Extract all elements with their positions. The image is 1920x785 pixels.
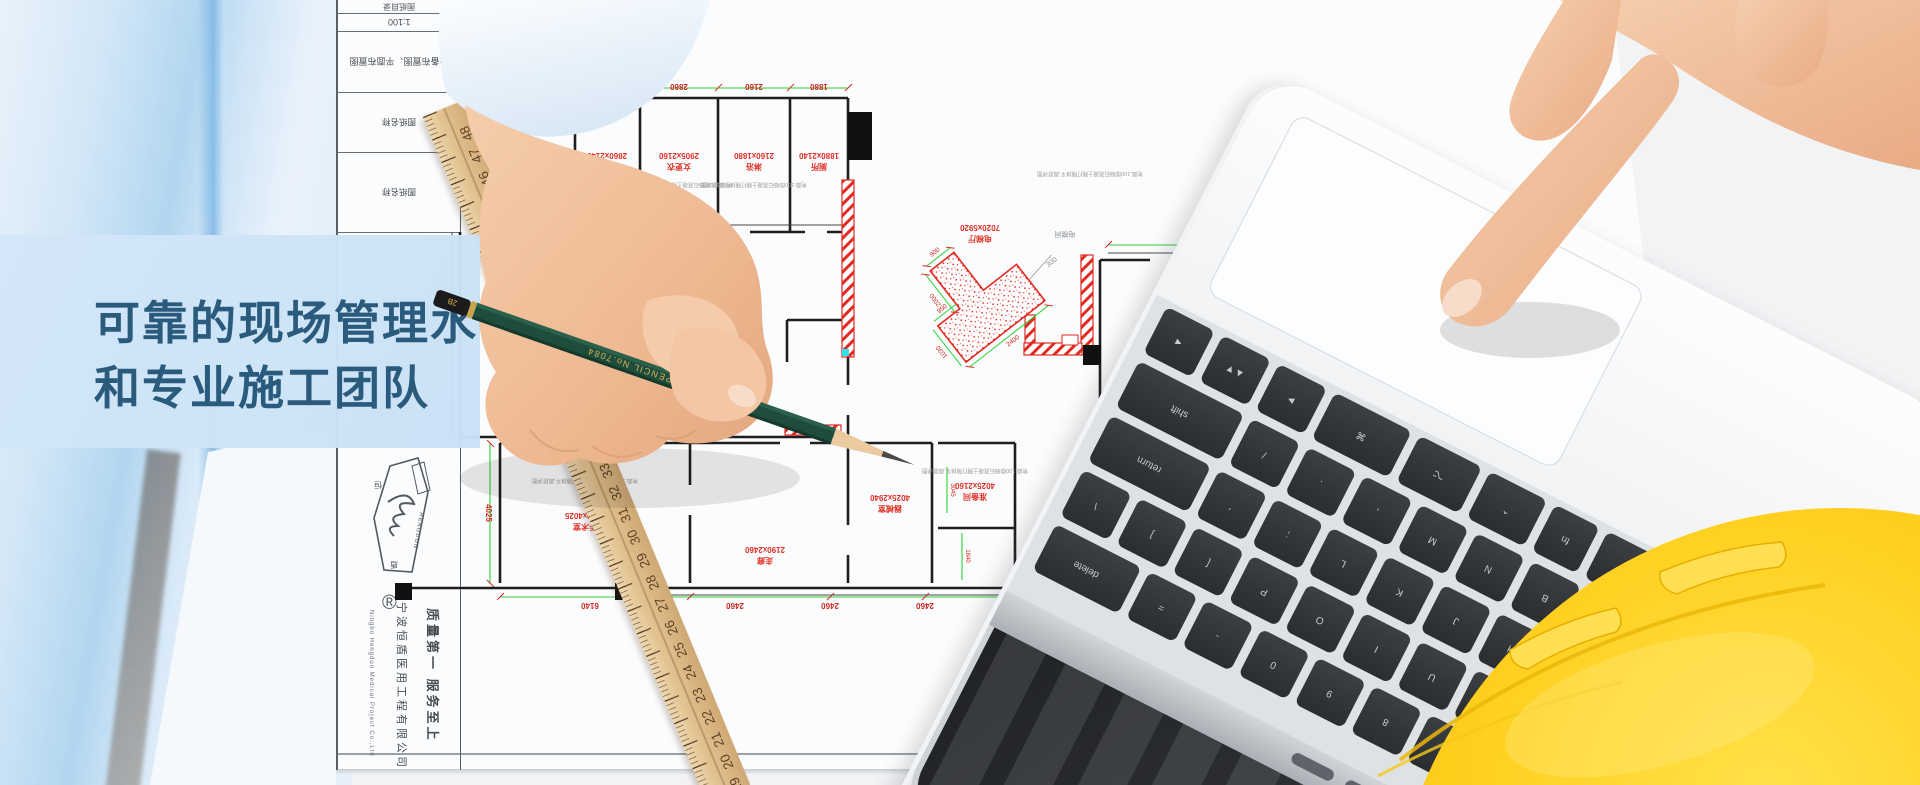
svg-text:2460: 2460 bbox=[726, 601, 744, 610]
keyboard-key[interactable]: P bbox=[1229, 555, 1301, 626]
svg-text:地面:100厚细石混凝土随打随抹平,面层详图: 地面:100厚细石混凝土随打随抹平,面层详图 bbox=[1037, 170, 1143, 178]
svg-text:电梯间: 电梯间 bbox=[1055, 230, 1076, 239]
svg-text:300: 300 bbox=[1045, 256, 1059, 269]
keyboard-key[interactable]: [ bbox=[1172, 527, 1244, 598]
svg-text:2460: 2460 bbox=[821, 601, 839, 610]
hero-banner: 图纸目录 1:100 设备布置图、平面布置图 图纸名称 图纸名称 HENGDUN… bbox=[0, 0, 1920, 785]
svg-text:走廊: 走廊 bbox=[757, 556, 774, 566]
keyboard-key[interactable]: O bbox=[1285, 584, 1357, 655]
pointing-arm: 2B DRAWING PENCIL No.7084 bbox=[380, 0, 980, 540]
ruler-number: 19 bbox=[724, 770, 746, 785]
keyboard-key[interactable]: - bbox=[1182, 600, 1254, 671]
keyboard-key[interactable]: \ bbox=[1060, 470, 1132, 541]
keyboard-key[interactable]: 9 bbox=[1294, 657, 1366, 728]
svg-text:6140: 6140 bbox=[581, 601, 599, 610]
pencil-tip bbox=[881, 451, 915, 468]
svg-text:2190x2460: 2190x2460 bbox=[744, 545, 785, 554]
keyboard-key[interactable]: = bbox=[1126, 572, 1198, 643]
svg-text:2400: 2400 bbox=[1005, 334, 1021, 349]
safety-helmet bbox=[1360, 490, 1920, 785]
svg-text:2460: 2460 bbox=[916, 601, 934, 610]
keyboard-key[interactable]: / bbox=[1229, 419, 1301, 490]
svg-text:1840: 1840 bbox=[964, 549, 970, 563]
keyboard-key[interactable]: ' bbox=[1196, 470, 1268, 541]
keyboard-key[interactable]: . bbox=[1285, 447, 1357, 518]
company-name-en: Ningbo Hengdun Medical Project Co.,Ltd bbox=[368, 610, 374, 765]
keyboard-key[interactable]: 0 bbox=[1238, 629, 1310, 700]
keyboard-key[interactable]: ] bbox=[1116, 498, 1188, 569]
typing-hand bbox=[1340, 0, 1920, 400]
keyboard-key[interactable]: ; bbox=[1252, 499, 1324, 570]
